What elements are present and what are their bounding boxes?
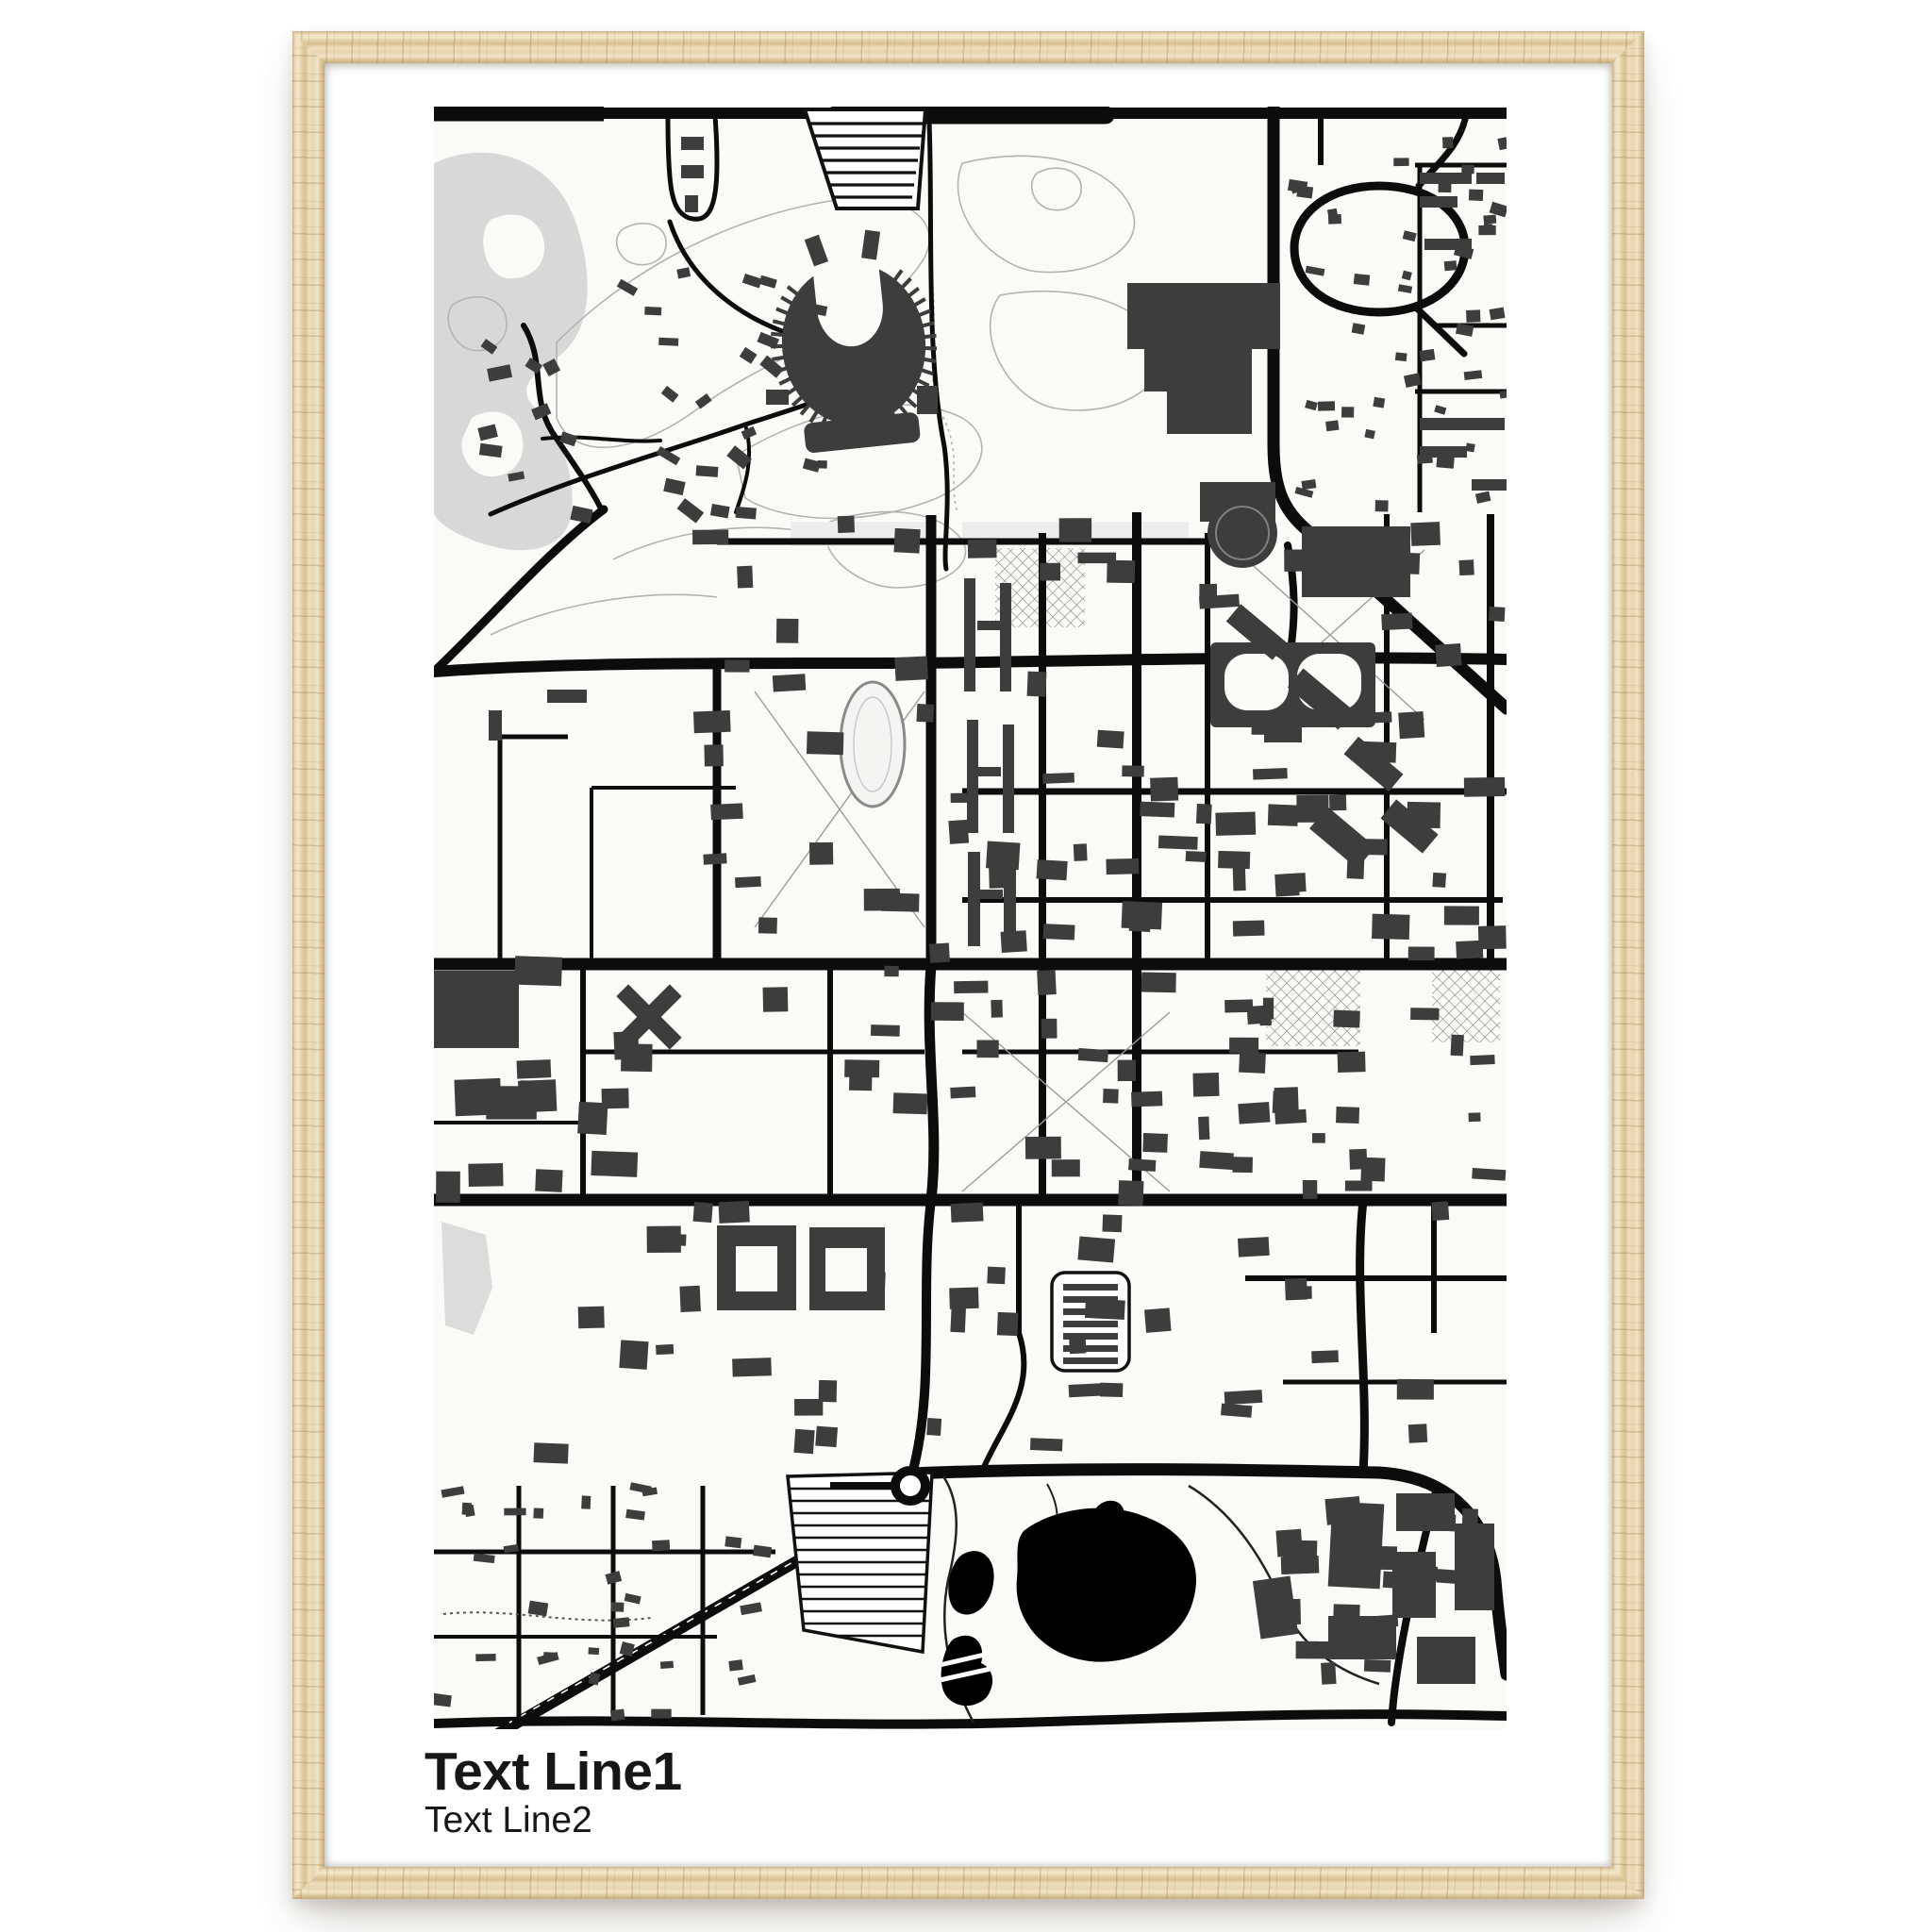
arena-feature: [1200, 482, 1277, 568]
frame-wood-right: [1612, 31, 1644, 1899]
frame-wood-top: [292, 31, 1644, 63]
map-print: [434, 107, 1507, 1729]
running-track-feature: [841, 682, 905, 807]
frame-wood-bottom: [292, 1867, 1644, 1899]
stadium-feature: [759, 224, 947, 457]
poster-frame: Text Line1 Text Line2: [292, 31, 1644, 1899]
page-background: Text Line1 Text Line2: [0, 0, 1932, 1932]
plaza-zones: [441, 522, 1189, 1335]
map-image: [434, 107, 1507, 1729]
poster-title-line2: Text Line2: [425, 1801, 682, 1841]
poster-caption: Text Line1 Text Line2: [425, 1744, 682, 1841]
bleacher-building: [1052, 1273, 1129, 1371]
residence-halls: [964, 578, 1016, 948]
poster-title-line1: Text Line1: [425, 1744, 682, 1800]
frame-mat: Text Line1 Text Line2: [325, 63, 1612, 1867]
courtyard-buildings: [717, 1225, 885, 1310]
lake-feature: [940, 1501, 1196, 1706]
twin-halls: [1210, 642, 1375, 742]
golf-course-area: [434, 153, 588, 550]
landmark-buildings: [434, 109, 1507, 1684]
parking-rows: [805, 109, 925, 208]
frame-wood-left: [292, 31, 325, 1899]
t-building: [1127, 283, 1280, 434]
